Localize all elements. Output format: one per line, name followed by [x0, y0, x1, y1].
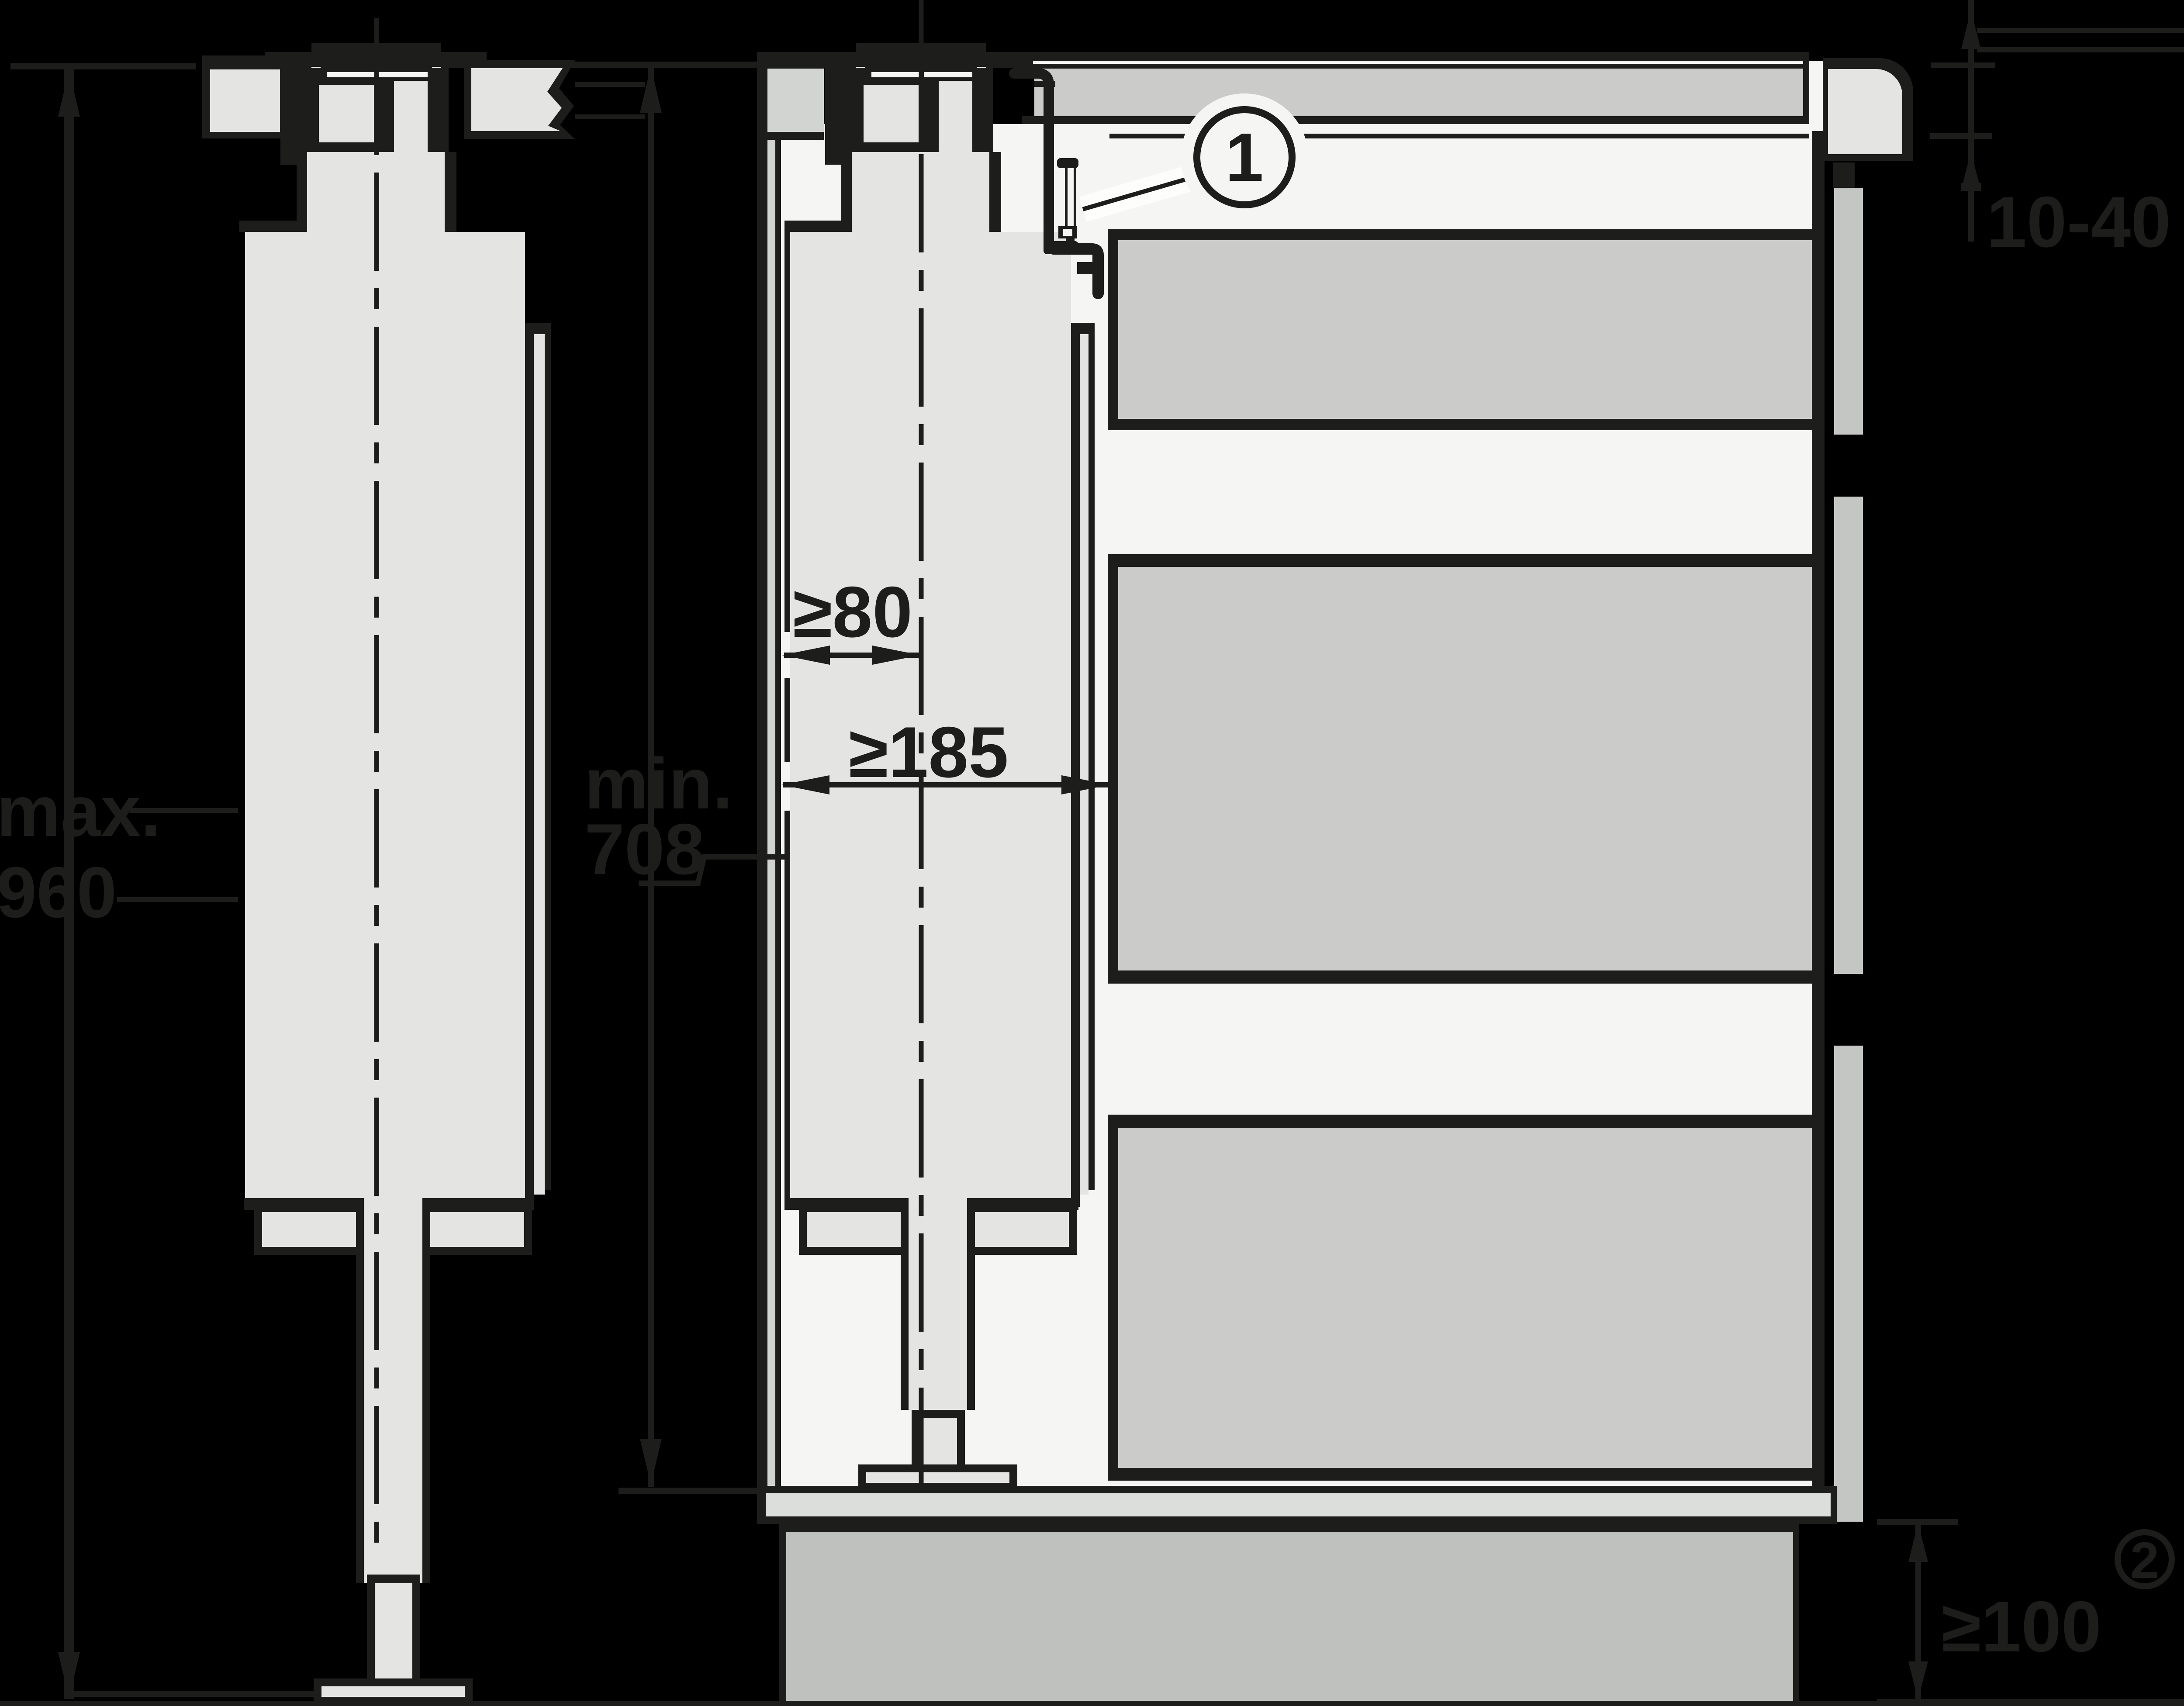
svg-text:≥80: ≥80	[793, 572, 912, 652]
svg-text:≥185: ≥185	[849, 712, 1009, 792]
svg-text:2: 2	[2130, 1532, 2159, 1589]
svg-text:708: 708	[584, 809, 705, 889]
svg-text:1: 1	[1225, 119, 1263, 196]
svg-text:≥100: ≥100	[1942, 1586, 2101, 1667]
svg-text:960: 960	[0, 852, 117, 932]
svg-text:10-40: 10-40	[1987, 182, 2171, 262]
